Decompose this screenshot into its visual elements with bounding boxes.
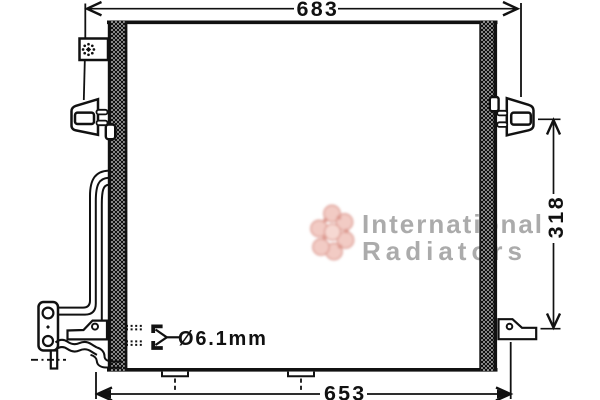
svg-text:653: 653 xyxy=(324,382,366,400)
svg-text:International: International xyxy=(362,209,544,239)
svg-text:Radiators: Radiators xyxy=(362,236,527,266)
svg-text:318: 318 xyxy=(544,195,568,239)
svg-text:683: 683 xyxy=(297,0,339,21)
svg-text:Ø6.1mm: Ø6.1mm xyxy=(178,328,268,350)
